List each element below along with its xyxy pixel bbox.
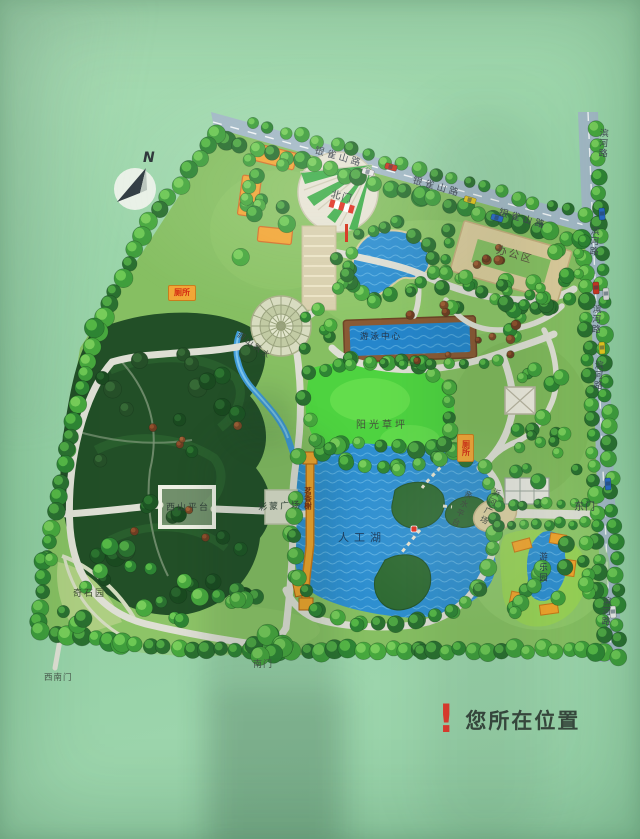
tree-highlight <box>584 342 592 350</box>
tree-highlight <box>549 645 557 653</box>
tree-highlight <box>207 575 216 584</box>
tree-highlight <box>128 638 136 646</box>
tree-highlight <box>398 185 406 193</box>
tree-highlight <box>289 492 297 500</box>
tree-highlight <box>611 620 618 627</box>
tree-highlight <box>233 139 242 148</box>
tree-highlight <box>440 267 448 275</box>
tree-highlight <box>54 476 63 485</box>
road-label-binhe-5: 滨河路 <box>599 596 610 626</box>
tree-highlight <box>565 644 573 652</box>
tree-highlight <box>460 597 467 604</box>
tree-highlight <box>487 542 494 549</box>
tree-highlight <box>192 589 202 599</box>
tree-highlight <box>141 214 151 224</box>
tree-highlight <box>354 230 360 236</box>
tree-highlight <box>434 453 442 461</box>
tree-highlight <box>121 403 129 411</box>
tree-highlight <box>186 643 195 652</box>
tree-highlight <box>49 504 59 514</box>
tree-highlight <box>76 611 86 621</box>
tree-highlight <box>548 201 554 207</box>
tree-highlight <box>407 230 415 238</box>
tree-highlight <box>536 640 546 650</box>
tree-highlight <box>560 537 569 546</box>
tree-highlight <box>292 450 301 459</box>
tree-highlight <box>96 309 107 320</box>
tree-highlight <box>262 123 269 130</box>
car <box>599 208 606 220</box>
tree-highlight <box>495 645 504 654</box>
tree-highlight <box>160 190 170 200</box>
tree-highlight <box>332 139 339 146</box>
tree-highlight <box>331 253 338 260</box>
tree-highlight <box>472 208 480 216</box>
tree-highlight <box>510 607 517 614</box>
tree-highlight <box>58 457 68 467</box>
tree-highlight <box>391 217 397 223</box>
tree-highlight <box>380 359 385 364</box>
tree-highlight <box>442 309 447 314</box>
tree-highlight <box>384 182 393 191</box>
tree-highlight <box>246 638 256 648</box>
tree-highlight <box>608 520 616 528</box>
tree-highlight <box>341 269 349 277</box>
tree-highlight <box>545 521 551 527</box>
tree-highlight <box>589 122 598 131</box>
tree-highlight <box>427 252 435 260</box>
tree-highlight <box>64 430 73 439</box>
tree-highlight <box>339 170 348 179</box>
tree-highlight <box>587 448 594 455</box>
tree-highlight <box>347 248 354 255</box>
tree-highlight <box>331 611 339 619</box>
tree-highlight <box>80 582 87 589</box>
you-are-here-text: 您所在位置 <box>465 705 580 735</box>
label-swimming-center: 游泳中心 <box>360 333 402 342</box>
gate-label-east: 东门 <box>574 503 596 513</box>
tree-highlight <box>531 302 538 309</box>
tree-highlight <box>446 352 449 355</box>
tree-highlight <box>489 334 493 338</box>
tree-highlight <box>580 517 586 523</box>
tree-highlight <box>491 294 497 300</box>
toilet-sign-north-text: 厕所 <box>174 289 190 297</box>
tree-highlight <box>580 280 588 288</box>
tree-highlight <box>359 460 366 467</box>
tree-highlight <box>393 440 401 448</box>
tree-highlight <box>512 424 520 432</box>
tree-highlight <box>145 640 154 649</box>
tree-highlight <box>171 587 181 597</box>
tree-highlight <box>610 535 619 544</box>
tree-highlight <box>414 358 418 362</box>
tree-highlight <box>532 520 538 526</box>
toilet-sign-east-text: 厕所 <box>462 440 470 456</box>
tree-highlight <box>409 614 418 623</box>
tree-highlight <box>144 496 153 505</box>
tree-highlight <box>340 456 349 465</box>
tree-highlight <box>354 438 361 445</box>
road-label-binhe-1: 滨河路 <box>596 128 607 158</box>
tree-highlight <box>289 549 298 558</box>
tree-highlight <box>281 128 288 135</box>
tree-highlight <box>515 443 521 449</box>
tree-highlight <box>479 181 486 188</box>
tree-highlight <box>441 646 449 654</box>
tree-highlight <box>175 614 183 622</box>
tree-highlight <box>574 249 580 255</box>
tree-highlight <box>601 452 610 461</box>
tree-highlight <box>606 505 613 512</box>
tree-highlight <box>443 225 451 233</box>
tree-highlight <box>333 283 340 290</box>
tree-highlight <box>422 239 430 247</box>
tree-highlight <box>613 585 620 592</box>
tree-highlight <box>602 436 611 445</box>
tree-highlight <box>444 424 453 433</box>
tree-highlight <box>476 286 483 293</box>
tree-highlight <box>368 296 376 304</box>
tree-highlight <box>581 313 588 320</box>
tree-highlight <box>277 201 285 209</box>
tree-highlight <box>182 162 192 172</box>
tree-highlight <box>532 475 541 484</box>
exclamation-marker: ! <box>438 700 454 740</box>
tree-highlight <box>416 645 424 653</box>
tree-highlight <box>520 521 525 526</box>
tree-highlight <box>534 500 539 505</box>
tree-highlight <box>114 634 125 645</box>
tree-highlight <box>602 419 611 428</box>
cross-pavilion <box>505 387 535 414</box>
tree-highlight <box>94 565 102 573</box>
tree-highlight <box>380 222 387 229</box>
tree-highlight <box>507 351 511 355</box>
tree-highlight <box>588 644 598 654</box>
tree-highlight <box>351 619 359 627</box>
tree-highlight <box>372 617 380 625</box>
tree-highlight <box>444 412 451 419</box>
tree-highlight <box>384 288 392 296</box>
tree-highlight <box>345 143 353 151</box>
tree-highlight <box>229 644 237 652</box>
tree-highlight <box>446 605 453 612</box>
tree-highlight <box>251 143 260 152</box>
tree-highlight <box>441 255 447 261</box>
tree-highlight <box>60 442 69 451</box>
tree-highlight <box>497 186 504 193</box>
tree-highlight <box>59 627 70 638</box>
tree-highlight <box>602 377 609 384</box>
tree-highlight <box>252 648 262 658</box>
tree-highlight <box>612 553 620 561</box>
tree-highlight <box>320 365 327 372</box>
tree-highlight <box>613 633 621 641</box>
tree-highlight <box>125 561 132 568</box>
park-map-board: N 银雀山路 银雀山路 银雀山路 滨河路 滨河路 滨河路 滨河路 滨河路 北门 … <box>0 0 640 839</box>
toilet-sign-north: 厕所 <box>168 285 196 301</box>
tree-highlight <box>313 644 324 655</box>
tree-highlight <box>310 435 317 442</box>
tree-highlight <box>480 645 490 655</box>
tree-highlight <box>507 640 517 650</box>
car <box>610 606 617 618</box>
tree-highlight <box>244 181 251 188</box>
tree-highlight <box>560 269 569 278</box>
tree-highlight <box>334 359 342 367</box>
tree-highlight <box>509 500 515 506</box>
tree-highlight <box>529 364 537 372</box>
tree-highlight <box>409 442 419 452</box>
tree-highlight <box>301 313 307 319</box>
compass-north-label: N <box>143 151 155 165</box>
tree-highlight <box>156 640 164 648</box>
tree-highlight <box>230 407 239 416</box>
tree-highlight <box>483 255 487 259</box>
tree-highlight <box>575 270 581 276</box>
tree-highlight <box>561 233 569 241</box>
tree-highlight <box>95 455 102 462</box>
tree-highlight <box>288 530 295 537</box>
tree-highlight <box>81 355 90 364</box>
tree-highlight <box>398 644 407 653</box>
tree-highlight <box>445 359 451 365</box>
tree-highlight <box>579 323 588 332</box>
tree-highlight <box>292 571 301 580</box>
tree-highlight <box>389 617 398 626</box>
road-label-binhe-4: 滨河路 <box>591 360 602 390</box>
label-amusement-garden: 游乐园 <box>538 552 547 584</box>
tree-highlight <box>97 372 104 379</box>
tree-highlight <box>436 281 444 289</box>
tree-highlight <box>445 238 451 244</box>
tree-highlight <box>305 414 313 422</box>
tree-highlight <box>85 339 95 349</box>
tree-highlight <box>579 209 587 217</box>
current-location-marker <box>411 526 417 532</box>
tree-highlight <box>310 604 317 611</box>
tree-highlight <box>366 357 372 363</box>
car <box>603 288 610 300</box>
tree-highlight <box>569 521 574 526</box>
tree-highlight <box>465 178 471 184</box>
tree-highlight <box>180 437 184 441</box>
toilet-sign-east: 厕所 <box>457 434 474 462</box>
tree-highlight <box>178 349 185 356</box>
tree-highlight <box>611 598 620 607</box>
tree-highlight <box>43 536 51 544</box>
tree-highlight <box>213 590 220 597</box>
tree-highlight <box>593 520 600 527</box>
tree-highlight <box>277 160 284 167</box>
tree-highlight <box>536 438 542 444</box>
tree-highlight <box>325 443 332 450</box>
tree-highlight <box>528 580 536 588</box>
tree-highlight <box>150 424 154 428</box>
tree-highlight <box>545 377 554 386</box>
tree-highlight <box>371 644 380 653</box>
tree-highlight <box>527 431 533 437</box>
tree-highlight <box>595 555 602 562</box>
tree-highlight <box>592 187 600 195</box>
car <box>599 342 606 354</box>
tree-highlight <box>58 606 65 613</box>
tree-highlight <box>116 270 126 280</box>
tree-highlight <box>90 632 98 640</box>
tree-highlight <box>589 461 596 468</box>
label-artificial-lake: 人工湖 <box>338 532 386 543</box>
tree-highlight <box>555 517 561 523</box>
tree-highlight <box>199 642 209 652</box>
tree-highlight <box>344 262 351 269</box>
tree-highlight <box>599 390 606 397</box>
tree-highlight <box>608 568 617 577</box>
tree-highlight <box>102 297 112 307</box>
tree-highlight <box>248 207 257 216</box>
tree-highlight <box>527 198 534 205</box>
tree-highlight <box>296 128 304 136</box>
tree-highlight <box>510 466 517 473</box>
tree-highlight <box>551 428 558 435</box>
tree-highlight <box>507 335 512 340</box>
tree-highlight <box>76 381 84 389</box>
you-are-here-legend: ! 您所在位置 <box>438 702 580 738</box>
tree-highlight <box>557 500 562 505</box>
tree-highlight <box>522 464 528 470</box>
tree-highlight <box>178 575 186 583</box>
tree-highlight <box>326 641 337 652</box>
tree-highlight <box>393 464 400 471</box>
tree-highlight <box>459 271 467 279</box>
tree-highlight <box>351 169 361 179</box>
tree-highlight <box>588 430 595 437</box>
tree-highlight <box>44 521 54 531</box>
tree-highlight <box>536 284 542 290</box>
tree-highlight <box>215 643 223 651</box>
tree-highlight <box>123 258 131 266</box>
tree-highlight <box>105 382 115 392</box>
tree-highlight <box>173 641 182 650</box>
tree-highlight <box>230 584 239 593</box>
gate-label-south: 南门 <box>253 661 273 670</box>
tree-highlight <box>578 556 585 563</box>
tree-highlight <box>582 369 590 377</box>
tree-highlight <box>580 537 588 545</box>
tree-highlight <box>33 601 43 611</box>
label-west-hill-platform: 西山平台 <box>166 504 210 513</box>
road-label-binhe-3: 滨河路 <box>589 304 600 334</box>
tree-highlight <box>156 597 163 604</box>
tree-highlight <box>36 570 45 579</box>
tree-highlight <box>481 560 491 570</box>
tree-highlight <box>301 585 308 592</box>
tree-highlight <box>453 642 461 650</box>
tree-highlight <box>554 371 563 380</box>
tree-highlight <box>579 578 588 587</box>
tree-highlight <box>65 414 75 424</box>
tree-highlight <box>217 532 225 540</box>
tree-highlight <box>593 170 602 179</box>
tree-highlight <box>553 448 559 454</box>
tree-highlight <box>508 522 513 527</box>
tree-highlight <box>33 623 43 633</box>
tree-highlight <box>174 178 184 188</box>
tree-highlight <box>234 422 239 427</box>
tree-highlight <box>518 502 523 507</box>
tree-highlight <box>598 265 605 272</box>
tree-highlight <box>514 596 523 605</box>
tree-highlight <box>480 359 486 365</box>
tree-highlight <box>414 459 421 466</box>
tree-highlight <box>460 360 465 365</box>
tree-highlight <box>108 285 116 293</box>
tree-highlight <box>580 294 590 304</box>
tree-highlight <box>153 202 162 211</box>
tree-highlight <box>325 320 332 327</box>
tree-highlight <box>526 291 532 297</box>
tree-highlight <box>474 584 482 592</box>
tree-highlight <box>494 521 501 528</box>
tree-highlight <box>467 644 476 653</box>
tree-highlight <box>102 539 112 549</box>
car <box>593 282 600 294</box>
tree-highlight <box>512 321 517 326</box>
tree-highlight <box>215 400 225 410</box>
tree-highlight <box>479 460 487 468</box>
tree-highlight <box>368 178 376 186</box>
tree-highlight <box>513 193 521 201</box>
tree-highlight <box>426 360 432 366</box>
tree-highlight <box>552 592 560 600</box>
tree-highlight <box>295 153 305 163</box>
tree-highlight <box>407 311 412 316</box>
tree-highlight <box>133 353 142 362</box>
tree-highlight <box>369 226 375 232</box>
tree-highlight <box>202 534 206 538</box>
tree-highlight <box>413 163 421 171</box>
tree-highlight <box>598 628 607 637</box>
label-fragrance-pavilion: 茗香榭 <box>304 487 312 510</box>
tree-highlight <box>300 344 306 350</box>
tree-highlight <box>51 489 61 499</box>
tree-highlight <box>303 367 311 375</box>
flag-pole <box>345 224 348 242</box>
tree-highlight <box>558 561 567 570</box>
tree-highlight <box>428 267 435 274</box>
car <box>605 478 612 490</box>
tree-highlight <box>522 646 530 654</box>
tree-highlight <box>131 528 136 533</box>
tree-highlight <box>611 650 620 659</box>
tree-highlight <box>127 242 136 251</box>
tree-highlight <box>558 428 566 436</box>
tree-highlight <box>426 441 435 450</box>
tree-highlight <box>137 601 146 610</box>
tree-highlight <box>91 549 100 558</box>
tree-highlight <box>279 216 289 226</box>
tree-highlight <box>313 304 320 311</box>
tree-highlight <box>483 478 490 485</box>
tree-highlight <box>537 293 544 300</box>
tree-highlight <box>431 169 438 176</box>
tree-highlight <box>550 437 556 443</box>
tree-highlight <box>324 162 332 170</box>
gate-label-southwest: 西南门 <box>44 674 73 683</box>
tree-highlight <box>438 438 447 447</box>
tree-highlight <box>244 155 251 162</box>
tree-highlight <box>251 169 260 178</box>
